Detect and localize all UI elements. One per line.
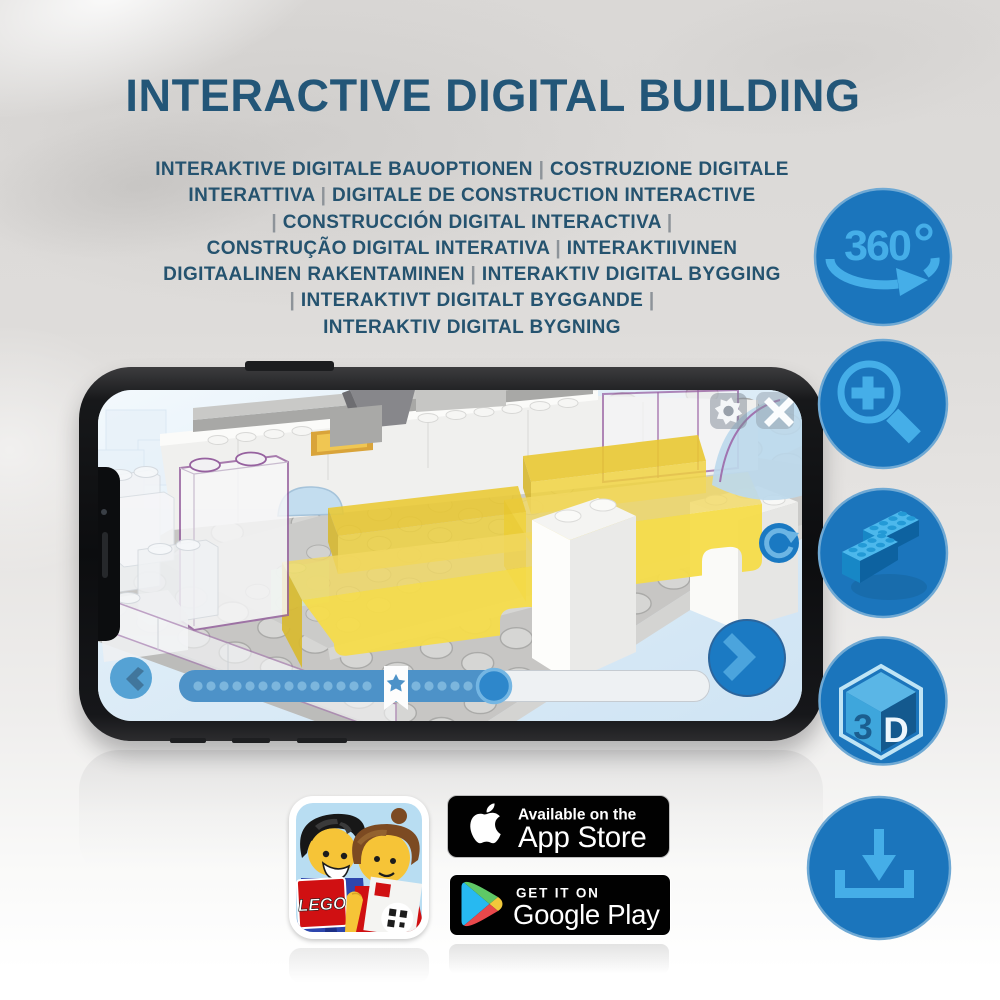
svg-text:3: 3 <box>853 708 872 747</box>
svg-text:D: D <box>883 711 908 750</box>
svg-text:LEGO: LEGO <box>298 894 347 915</box>
svg-text:360: 360 <box>844 222 911 270</box>
svg-text:App Store: App Store <box>518 821 647 854</box>
svg-text:Google Play: Google Play <box>513 899 660 930</box>
